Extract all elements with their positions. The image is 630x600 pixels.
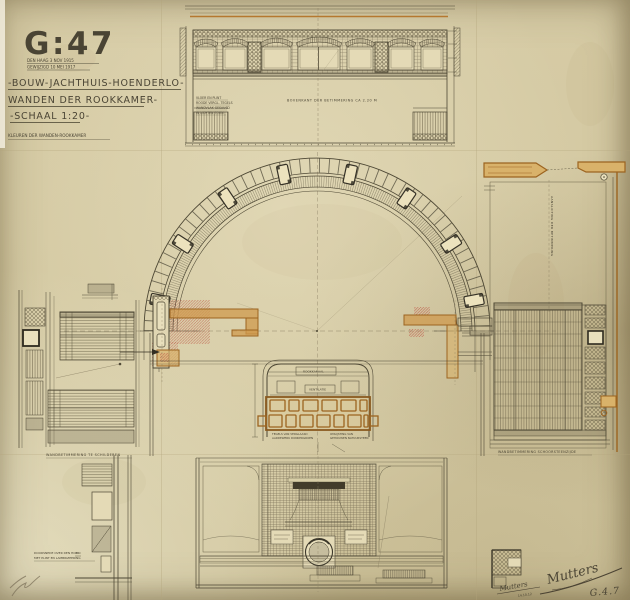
bottom-left-note-2: MET PLINT EN LAMBRIZEERING xyxy=(34,556,81,560)
fireplace-mid-label: VENTILATIE xyxy=(309,388,326,392)
signature-small-date: 14.10.12 xyxy=(518,592,533,598)
stamp-line-2: GEWIJZIGD 10 MEI 1917 xyxy=(27,65,76,70)
bottom-center-elevation xyxy=(196,456,447,592)
subtitle-line: KLEUREN DER WANDEN-ROOKKAMER xyxy=(8,133,86,138)
signature-large: Mutters xyxy=(544,560,600,588)
sheet-code-pencil: G.4.7 xyxy=(589,585,620,599)
svg-text:VLOER EN PLINT: VLOER EN PLINT xyxy=(196,96,221,100)
fireplace-top-label: ROOKKANAAL xyxy=(303,370,324,374)
spring-detail-left xyxy=(120,288,258,384)
pencil-scribble xyxy=(10,576,40,596)
spring-detail-right xyxy=(404,300,492,385)
right-vertical-note: AANSLUITING DER BETIMMERING xyxy=(550,196,554,257)
title-block: G:47 DEN HAAG 3 NOV 1915 GEWIJZIGD 10 ME… xyxy=(8,26,184,140)
top-elevation-view: VLOER EN PLINT ROODE VERGL. TEGELS WANDV… xyxy=(180,6,460,146)
fireplace-note-right-2: GEHOUWEN NATUURSTEEN xyxy=(330,436,368,440)
bottom-left-note-1: DOORSNEDE OVER DEN HOEK xyxy=(34,551,81,555)
stamp-line-1: DEN HAAG 3 NOV 1915 xyxy=(27,58,74,63)
svg-text:WANDVLAK GESAUSD: WANDVLAK GESAUSD xyxy=(196,106,230,110)
right-wall-panel: AANSLUITING DER BETIMMERING WANDBETIMMER… xyxy=(484,162,625,455)
window-openings xyxy=(196,47,443,70)
svg-text:IN LICHTEN TOON: IN LICHTEN TOON xyxy=(196,111,224,115)
title-line-2: WANDEN DER ROOKKAMER- xyxy=(8,95,158,106)
bottom-right-corner: Mutters 14.10.12 Mutters G.4.7 xyxy=(492,550,622,599)
top-center-note: BOVENKANT DER BETIMMERING CA 2.20 M xyxy=(287,99,377,103)
fireplace-elevation: ROOKKANAAL VENTILATIE TEGELS VAN VERGLAA… xyxy=(150,360,483,452)
drawing-canvas: G:47 DEN HAAG 3 NOV 1915 GEWIJZIGD 10 ME… xyxy=(0,0,630,600)
fireplace-note-left-2: AARDEWERK DONKERGROEN xyxy=(272,436,313,440)
svg-text:ROODE VERGL. TEGELS: ROODE VERGL. TEGELS xyxy=(196,101,233,105)
right-panel-label: WANDBETIMMERING SCHOORSTEENZIJDE xyxy=(498,450,576,454)
sheet-code: G:47 xyxy=(24,26,115,62)
architectural-drawing-sheet: G:47 DEN HAAG 3 NOV 1915 GEWIJZIGD 10 ME… xyxy=(0,0,630,600)
title-line-3: -SCHAAL 1:20- xyxy=(10,111,90,122)
left-wall-panel: WANDBETIMMERING TE SCHILDEREN xyxy=(19,284,139,458)
title-line-1: -BOUW-JACHTHUIS-HOENDERLO- xyxy=(8,78,184,89)
left-panel-label: WANDBETIMMERING TE SCHILDEREN xyxy=(46,453,120,457)
